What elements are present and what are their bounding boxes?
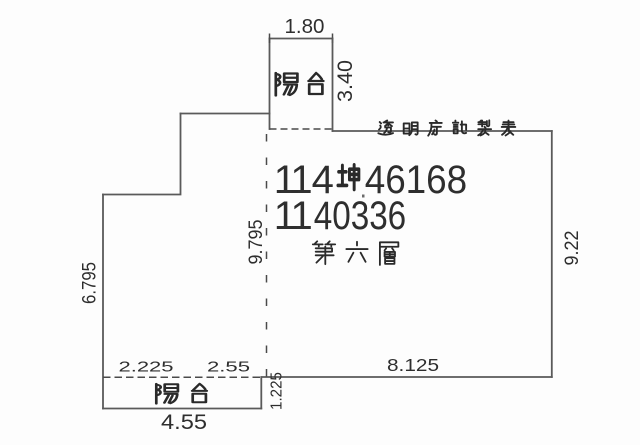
svg-text:4.55: 4.55 — [161, 411, 207, 434]
svg-text:6.795: 6.795 — [80, 262, 101, 304]
svg-text:2.55: 2.55 — [207, 359, 250, 376]
svg-text:1.80: 1.80 — [285, 16, 325, 38]
svg-text:3.40: 3.40 — [334, 60, 357, 102]
svg-text:40336: 40336 — [314, 194, 407, 238]
svg-text:9.22: 9.22 — [562, 231, 583, 266]
svg-text:1.225: 1.225 — [269, 372, 286, 410]
svg-text:2.225: 2.225 — [119, 359, 174, 376]
svg-text:9.795: 9.795 — [246, 220, 267, 265]
svg-text:8.125: 8.125 — [387, 355, 439, 375]
svg-text:11: 11 — [274, 194, 313, 238]
